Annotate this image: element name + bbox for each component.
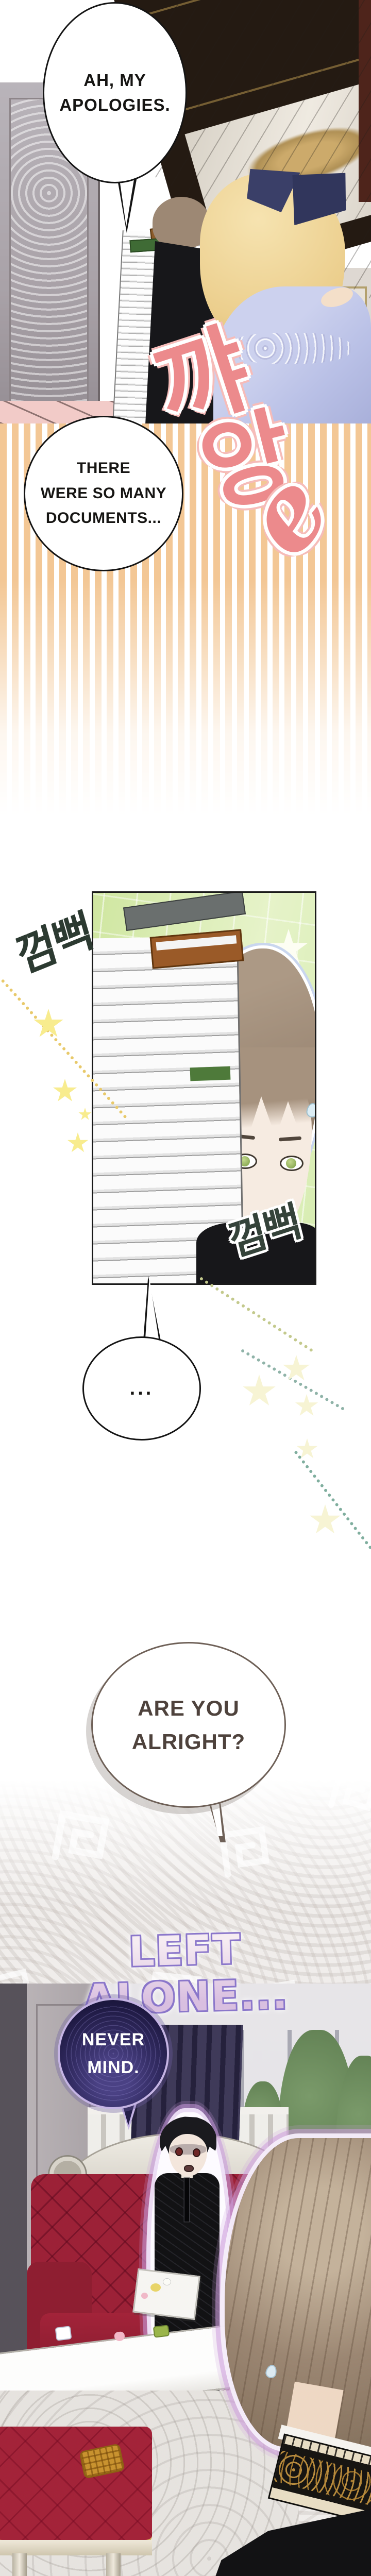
red-ottoman — [0, 2427, 152, 2543]
speech-bubble-documents: THERE WERE SO MANY DOCUMENTS... — [24, 416, 183, 571]
bubble-text: AH, MY — [83, 68, 146, 93]
ottoman-leg — [106, 2553, 121, 2576]
bubble-text: ARE YOU — [138, 1691, 240, 1725]
boy-mouth — [184, 2165, 194, 2172]
bottom-scene — [0, 1752, 371, 2576]
pale-star — [295, 1394, 318, 1418]
bubble-text: APOLOGIES. — [59, 93, 170, 117]
boy-tie — [184, 2178, 189, 2222]
dotted-trail — [294, 1450, 371, 1550]
bubble-text: ... — [130, 1378, 154, 1400]
bubble-text: DOCUMENTS... — [46, 506, 161, 531]
speech-bubble-alright: ARE YOU ALRIGHT? — [91, 1642, 286, 1808]
drawing-room — [0, 1984, 371, 2576]
webtoon-page: AH, MY APOLOGIES. 꺄 앙 e THERE WERE SO MA… — [0, 0, 371, 2576]
dotted-trail — [199, 1277, 313, 1352]
yellow-star — [33, 1009, 64, 1040]
pale-star — [282, 1355, 310, 1383]
bubble-text: THERE — [77, 456, 130, 481]
dessert — [141, 2293, 148, 2299]
bubble-text: ALRIGHT? — [132, 1725, 245, 1758]
speech-bubble-apologies: AH, MY APOLOGIES. — [43, 2, 187, 183]
yellow-star — [53, 1079, 77, 1104]
green-eye — [280, 1156, 303, 1171]
yellow-star — [67, 1132, 89, 1154]
sfx-blink: 껌뻑 — [8, 894, 98, 986]
boy-eye — [193, 2148, 200, 2157]
green-book — [190, 1066, 231, 1081]
mini-cake-blue — [55, 2326, 72, 2341]
dessert — [163, 2278, 171, 2285]
dotted-trail — [241, 1349, 345, 1411]
yellow-star — [78, 1108, 92, 1121]
dessert — [150, 2283, 161, 2292]
bubble-text: WERE SO MANY — [41, 481, 166, 506]
ottoman-leg — [12, 2553, 27, 2576]
speech-bubble-ellipsis: ... — [82, 1336, 201, 1440]
pale-star — [309, 1504, 341, 1536]
speech-bubble-never-mind: NEVER MIND. — [58, 1998, 169, 2109]
pale-star — [242, 1375, 276, 1409]
bubble-text: NEVER — [82, 2026, 145, 2054]
boy-eye — [175, 2147, 183, 2156]
bubble-text: MIND. — [87, 2054, 139, 2081]
mini-cake-green — [153, 2325, 170, 2337]
